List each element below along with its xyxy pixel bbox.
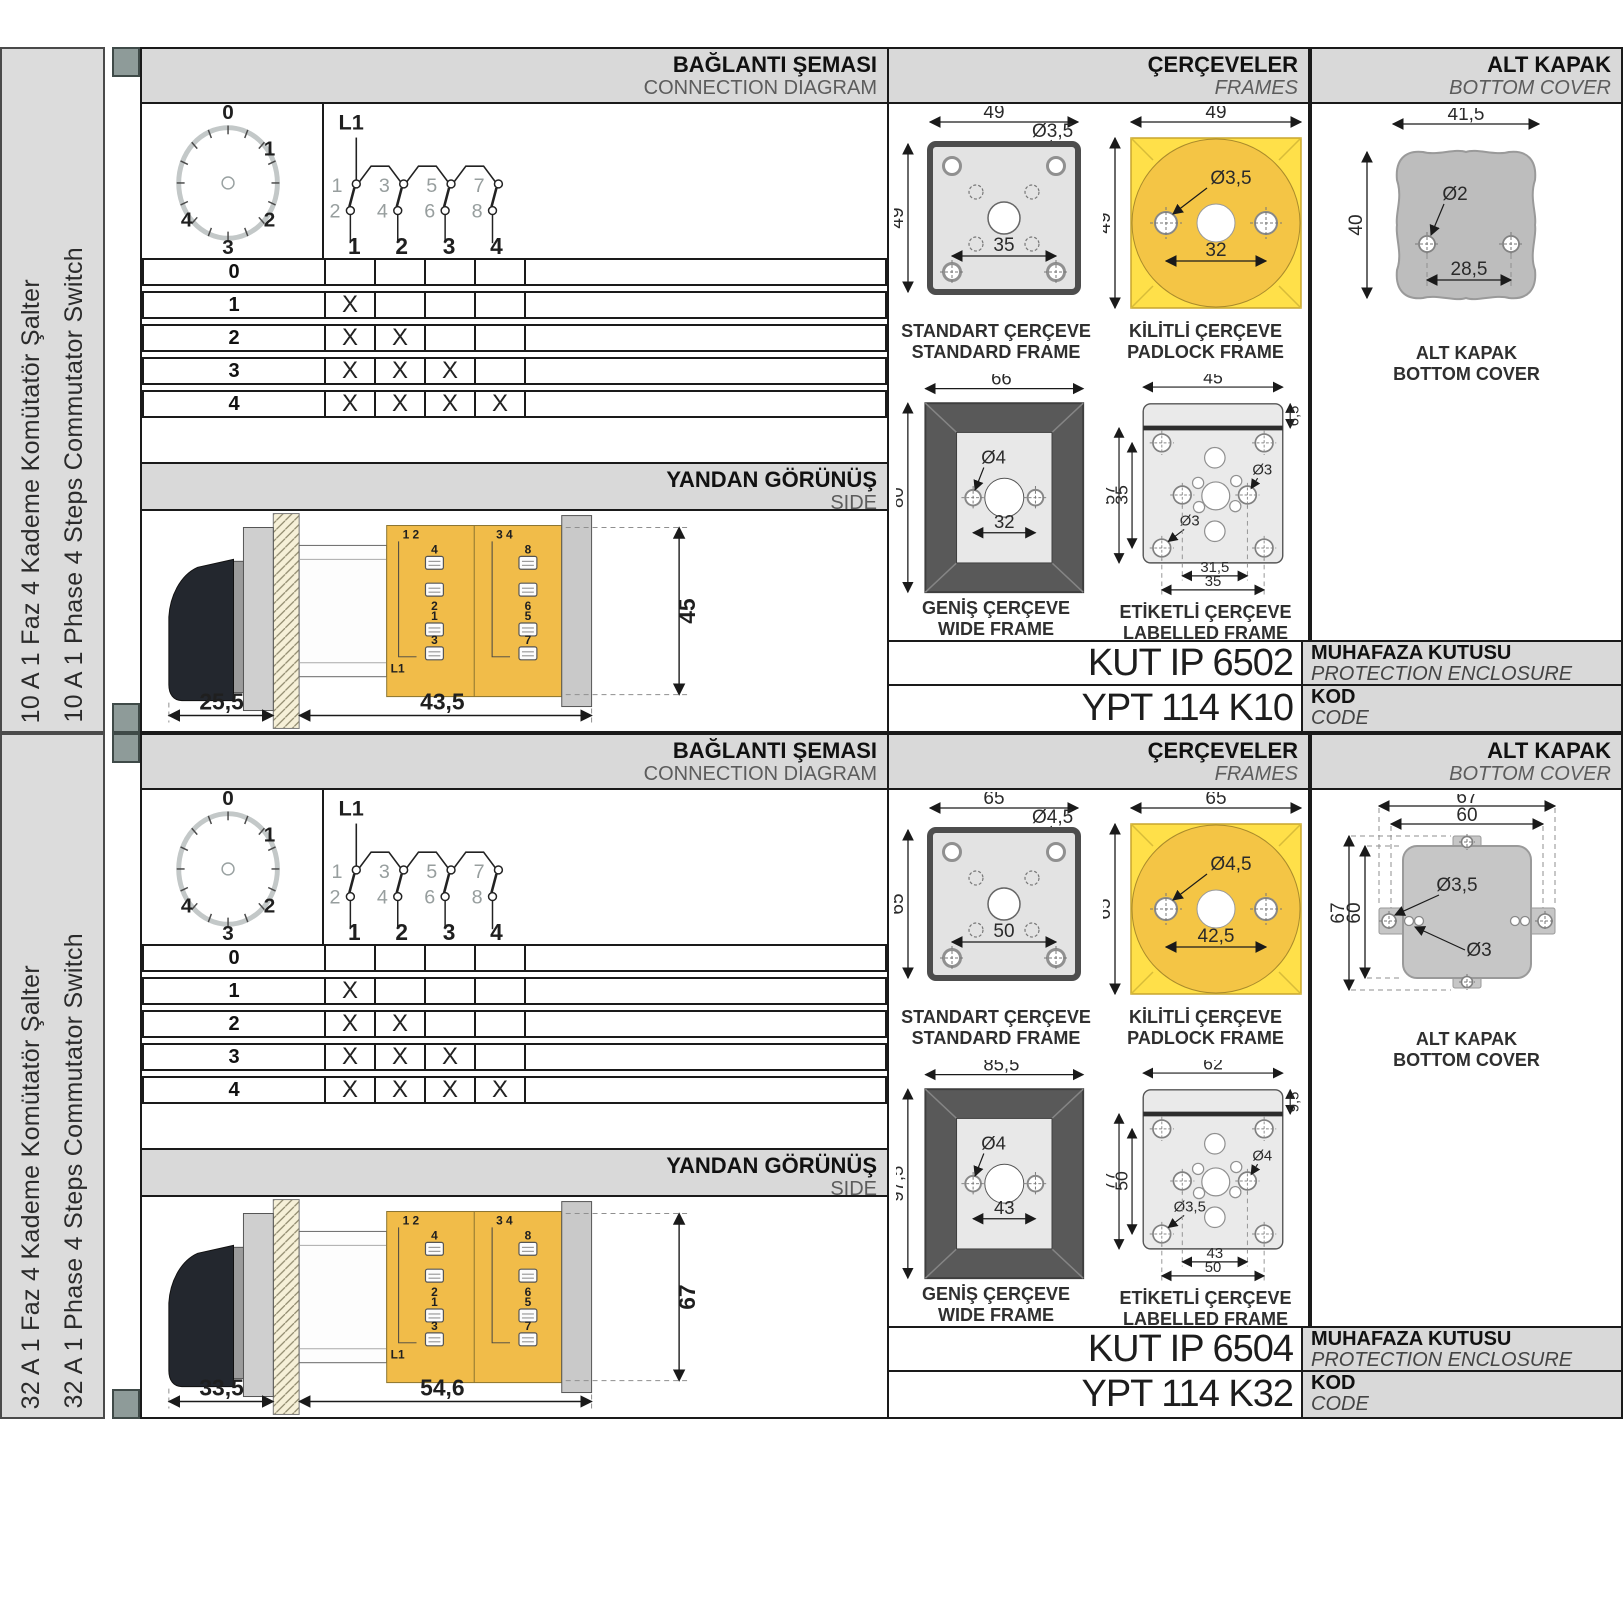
connection-title-en: CONNECTION DIAGRAM	[146, 763, 877, 785]
switch-position-dial: 0 1 2 3 4	[142, 790, 324, 944]
dim-hole-corner: Ø3,5	[1173, 1200, 1205, 1216]
pole-number: 4	[490, 919, 503, 942]
schematic-drawing: L1	[330, 110, 504, 256]
bottom-cover-panel: ALT KAPAK BOTTOM COVER 41,5 40	[1310, 47, 1623, 640]
bottom-cover-caption-tr: ALT KAPAK	[1393, 1029, 1540, 1050]
contact-mark: X	[424, 1078, 474, 1102]
pole-number: 1	[348, 233, 361, 256]
dim-pitch: 43	[994, 1197, 1015, 1218]
terminal-number: 1	[331, 861, 342, 883]
standard-frame-caption-en: STANDARD FRAME	[901, 342, 1091, 363]
product-row: 10 A 1 Faz 4 Kademe Komütatör Şalter 10 …	[0, 47, 1623, 733]
contact-mark: X	[374, 359, 424, 383]
labelled-frame-caption-tr: ETİKETLİ ÇERÇEVE	[1119, 1288, 1291, 1309]
dim-pitch: 35	[993, 235, 1014, 256]
contact-mark	[374, 946, 424, 970]
table-spacer	[524, 260, 885, 284]
product-code-label: KOD CODE	[1301, 1372, 1621, 1417]
terminal-number: 1	[331, 175, 342, 197]
dim-height-inner: 60	[1344, 902, 1365, 923]
bottom-cover-header: ALT KAPAK BOTTOM COVER	[1312, 49, 1621, 104]
table-row: 4 X X X X	[142, 1076, 887, 1104]
bottom-cover-title-en: BOTTOM COVER	[1316, 77, 1611, 99]
terminal-label: 5	[525, 1295, 532, 1309]
product-code-label-en: CODE	[1311, 708, 1613, 729]
bottom-cover-title-tr: ALT KAPAK	[1316, 53, 1611, 77]
dim-width: 45	[1203, 374, 1223, 387]
side-view-drawing: 1 2 3 4	[142, 511, 887, 733]
switch-side-view: 1 2 3 4	[169, 514, 700, 729]
dial-label-3: 3	[222, 236, 234, 256]
dim-band: 9,5	[1286, 1092, 1302, 1113]
side-view-header: YANDAN GÖRÜNÜŞ SIDE	[142, 1148, 887, 1197]
product-title-english: 10 A 1 Phase 4 Steps Commutator Switch	[60, 247, 89, 723]
contact-mark	[424, 260, 474, 284]
terminal-number: 6	[424, 887, 435, 909]
padlock-frame-caption-tr: KİLİTLİ ÇERÇEVE	[1127, 321, 1284, 342]
pole-number: 3	[443, 919, 456, 942]
terminal-number: 3	[379, 175, 390, 197]
table-spacer	[524, 359, 885, 383]
dim-hole: Ø4,5	[1032, 807, 1073, 828]
table-row: 0	[142, 944, 887, 972]
terminal-group-label: 1 2	[403, 1213, 420, 1227]
enclosure-label-en: PROTECTION ENCLOSURE	[1311, 1350, 1613, 1371]
connection-panel: BAĞLANTI ŞEMASI CONNECTION DIAGRAM	[140, 733, 889, 1419]
bottom-cover-panel: ALT KAPAK BOTTOM COVER 67 67	[1310, 733, 1623, 1326]
step-label: 2	[144, 326, 324, 350]
dim-height: 65	[894, 893, 908, 914]
product-sidebar: 32 A 1 Faz 4 Kademe Komütatör Şalter 32 …	[0, 733, 105, 1419]
dim-height: 49	[1103, 212, 1115, 233]
contact-mark: X	[424, 1045, 474, 1069]
terminal-label: 4	[431, 542, 438, 556]
connection-header: BAĞLANTI ŞEMASI CONNECTION DIAGRAM	[142, 49, 887, 104]
standard-frame-cell: 65 Ø4,5 65	[889, 790, 1103, 1058]
contact-mark	[474, 326, 524, 350]
catalog-page: 10 A 1 Faz 4 Kademe Komütatör Şalter 10 …	[0, 0, 1623, 1623]
table-row: 2 X X	[142, 1010, 887, 1038]
schematic-input-label: L1	[339, 796, 364, 821]
step-label: 4	[144, 392, 324, 416]
table-row: 3 X X X	[142, 357, 887, 385]
side-view-title-tr: YANDAN GÖRÜNÜŞ	[146, 1154, 877, 1178]
dim-hole: Ø3,5	[1436, 875, 1477, 896]
dim-hole-mid: Ø4	[1252, 1149, 1272, 1165]
wide-frame-caption-tr: GENİŞ ÇERÇEVE	[922, 598, 1070, 619]
padlock-frame-cell: 65 65	[1103, 790, 1308, 1058]
product-sidebar: 10 A 1 Faz 4 Kademe Komütatör Şalter 10 …	[0, 47, 105, 733]
terminal-number: 5	[426, 175, 437, 197]
side-input-label: L1	[391, 1348, 405, 1362]
terminal-label: 5	[525, 609, 532, 623]
standard-frame-drawing: 65 Ø4,5 65	[894, 792, 1099, 1007]
product-code-label-tr: KOD	[1311, 687, 1613, 708]
side-view-title-tr: YANDAN GÖRÜNÜŞ	[146, 468, 877, 492]
contact-mark: X	[424, 359, 474, 383]
standard-frame-caption-en: STANDARD FRAME	[901, 1028, 1091, 1049]
product-code-value: YPT 114 K10	[889, 686, 1301, 731]
contact-mark: X	[374, 392, 424, 416]
terminal-number: 3	[379, 861, 390, 883]
contact-mark	[474, 1012, 524, 1036]
product-title-turkish: 32 A 1 Faz 4 Kademe Komütatör Şalter	[17, 965, 46, 1409]
bottom-cover-drawing: 41,5 40 Ø2 28,5	[1327, 108, 1607, 343]
table-spacer	[524, 1012, 885, 1036]
terminal-group-label: 3 4	[496, 527, 513, 541]
contact-mark: X	[324, 293, 374, 317]
connection-panel: BAĞLANTI ŞEMASI CONNECTION DIAGRAM	[140, 47, 889, 733]
table-row: 2 X X	[142, 324, 887, 352]
terminal-label: 8	[525, 1228, 532, 1242]
bottom-cover-drawing: 67 60 67 60	[1327, 794, 1607, 1029]
dial-label-2: 2	[264, 208, 276, 231]
dim-hole-small: Ø3	[1466, 940, 1491, 961]
padlock-frame-cell: 49 49	[1103, 104, 1308, 372]
bottom-cover-header: ALT KAPAK BOTTOM COVER	[1312, 735, 1621, 790]
connection-title-tr: BAĞLANTI ŞEMASI	[146, 53, 877, 77]
terminal-label: 1	[431, 609, 438, 623]
step-label: 3	[144, 359, 324, 383]
step-label: 1	[144, 979, 324, 1003]
contact-mark: X	[324, 392, 374, 416]
dim-height: 40	[1346, 214, 1367, 235]
terminal-number: 8	[472, 887, 483, 909]
contact-mark	[474, 359, 524, 383]
dial-label-1: 1	[264, 137, 276, 160]
step-label: 1	[144, 293, 324, 317]
standard-frame-caption-tr: STANDART ÇERÇEVE	[901, 321, 1091, 342]
dim-width: 41,5	[1447, 108, 1484, 125]
dim-width: 65	[983, 792, 1004, 809]
dim-width: 62	[1203, 1060, 1223, 1073]
dial-label-0: 0	[222, 104, 234, 124]
dim-handle-depth: 33,5	[199, 1375, 244, 1401]
switch-position-dial: 0 1 2 3 4	[142, 104, 324, 258]
enclosure-code: KUT IP 6502	[889, 642, 1301, 684]
contact-mark	[474, 946, 524, 970]
table-spacer	[524, 392, 885, 416]
product-code-value: YPT 114 K32	[889, 1372, 1301, 1417]
contact-mark: X	[374, 1045, 424, 1069]
terminal-label: 3	[431, 1319, 438, 1333]
contact-mark	[424, 293, 474, 317]
terminal-label: 7	[525, 1319, 532, 1333]
dial-label-1: 1	[264, 823, 276, 846]
bottom-cover-title-en: BOTTOM COVER	[1316, 763, 1611, 785]
wide-frame-caption-tr: GENİŞ ÇERÇEVE	[922, 1284, 1070, 1305]
product-code-label-tr: KOD	[1311, 1373, 1613, 1394]
step-label: 3	[144, 1045, 324, 1069]
dim-pitch: 50	[993, 921, 1014, 942]
step-label: 0	[144, 260, 324, 284]
contact-mark	[374, 260, 424, 284]
contact-table: 0 1 X 2 X X	[142, 944, 887, 1109]
dim-pitch-outer: 50	[1204, 1260, 1221, 1276]
dial-label-3: 3	[222, 922, 234, 942]
schematic-drawing: L1	[330, 796, 504, 942]
step-label: 0	[144, 946, 324, 970]
contact-mark	[324, 260, 374, 284]
side-view-header: YANDAN GÖRÜNÜŞ SIDE	[142, 462, 887, 511]
dial-face: 0 1 2 3 4	[177, 790, 280, 942]
padlock-frame-caption-en: PADLOCK FRAME	[1127, 1028, 1284, 1049]
side-input-label: L1	[391, 662, 405, 676]
table-row: 0	[142, 258, 887, 286]
dial-label-2: 2	[264, 894, 276, 917]
dial-face: 0 1 2 3 4	[177, 104, 280, 256]
contact-schematic: L1	[324, 790, 887, 944]
contact-mark	[424, 326, 474, 350]
dim-hole: Ø2	[1442, 184, 1467, 205]
contact-schematic: L1	[324, 104, 887, 258]
table-row: 4 X X X X	[142, 390, 887, 418]
wide-frame-caption-en: WIDE FRAME	[922, 1305, 1070, 1326]
product-code-label: KOD CODE	[1301, 686, 1621, 731]
standard-frame-caption-tr: STANDART ÇERÇEVE	[901, 1007, 1091, 1028]
contact-mark: X	[374, 1012, 424, 1036]
pole-number: 2	[395, 919, 408, 942]
dial-label-0: 0	[222, 790, 234, 810]
enclosure-code: KUT IP 6504	[889, 1328, 1301, 1370]
dim-hole: Ø4	[981, 1133, 1006, 1154]
table-spacer	[524, 946, 885, 970]
wide-frame-drawing: 66 80	[896, 374, 1096, 598]
terminal-number: 4	[377, 887, 388, 909]
contact-mark	[474, 979, 524, 1003]
padlock-frame-drawing: 49 49	[1103, 106, 1308, 321]
schematic-input-label: L1	[339, 110, 364, 135]
bottom-cover-caption-tr: ALT KAPAK	[1393, 343, 1540, 364]
product-title-english: 32 A 1 Phase 4 Steps Commutator Switch	[60, 933, 89, 1409]
bottom-cover-caption-en: BOTTOM COVER	[1393, 364, 1540, 385]
labelled-frame-drawing: 45 6,5 57 35	[1106, 374, 1306, 602]
bottom-cover-caption-en: BOTTOM COVER	[1393, 1050, 1540, 1071]
enclosure-row: KUT IP 6502 MUHAFAZA KUTUSU PROTECTION E…	[889, 640, 1623, 686]
pole-number: 3	[443, 233, 456, 256]
labelled-frame-cell: 62 9,5 77 50	[1103, 1058, 1308, 1329]
dim-hole: Ø3,5	[1032, 121, 1073, 142]
bottom-cover-cell: 67 67 Ø3,5	[1312, 790, 1621, 1070]
step-label: 2	[144, 1012, 324, 1036]
contact-mark: X	[324, 1078, 374, 1102]
wide-frame-drawing: 85,5 97,5	[896, 1060, 1096, 1284]
dim-height: 80	[896, 487, 907, 508]
frames-header: ÇERÇEVELER FRAMES	[889, 49, 1308, 104]
enclosure-label-en: PROTECTION ENCLOSURE	[1311, 664, 1613, 685]
frames-title-tr: ÇERÇEVELER	[893, 739, 1298, 763]
switch-handle	[169, 559, 234, 700]
product-code-row: YPT 114 K10 KOD CODE	[889, 686, 1623, 733]
table-row: 1 X	[142, 291, 887, 319]
standard-frame-drawing: 49 Ø3,5 49	[894, 106, 1099, 321]
dim-pitch-outer: 35	[1204, 574, 1221, 590]
contact-mark: X	[324, 359, 374, 383]
terminal-group-label: 3 4	[496, 1213, 513, 1227]
table-spacer	[524, 326, 885, 350]
contact-mark: X	[374, 326, 424, 350]
terminal-number: 6	[424, 201, 435, 223]
frames-title-en: FRAMES	[893, 763, 1298, 785]
product-title-turkish: 10 A 1 Faz 4 Kademe Komütatör Şalter	[17, 279, 46, 723]
binder-mark	[112, 47, 140, 77]
wide-frame-cell: 85,5 97,5	[889, 1058, 1103, 1329]
dial-label-4: 4	[181, 894, 193, 917]
table-spacer	[524, 293, 885, 317]
wide-frame-caption-en: WIDE FRAME	[922, 619, 1070, 640]
terminal-label: 1	[431, 1295, 438, 1309]
table-row: 3 X X X	[142, 1043, 887, 1071]
frames-panel: ÇERÇEVELER FRAMES 49 Ø3,5 49	[889, 47, 1310, 640]
contact-mark: X	[424, 392, 474, 416]
dim-body-depth: 43,5	[420, 689, 465, 715]
dim-width: 49	[983, 106, 1004, 123]
wide-frame-cell: 66 80	[889, 372, 1103, 643]
table-spacer	[524, 1078, 885, 1102]
pole-number: 1	[348, 919, 361, 942]
terminal-group-label: 1 2	[403, 527, 420, 541]
enclosure-label: MUHAFAZA KUTUSU PROTECTION ENCLOSURE	[1301, 642, 1621, 684]
contact-mark	[474, 293, 524, 317]
bottom-cover-cell: 41,5 40 Ø2 28,5	[1312, 104, 1621, 384]
frames-title-en: FRAMES	[893, 77, 1298, 99]
dim-inner-height: 50	[1111, 1171, 1131, 1191]
terminal-label: 4	[431, 1228, 438, 1242]
dim-body-depth: 54,6	[420, 1375, 465, 1401]
dim-height: 97,5	[896, 1166, 907, 1202]
dim-width: 66	[991, 374, 1012, 389]
contact-mark: X	[324, 979, 374, 1003]
dim-height: 45	[674, 598, 700, 624]
dim-width: 65	[1205, 792, 1226, 809]
step-label: 4	[144, 1078, 324, 1102]
terminal-number: 7	[474, 861, 485, 883]
terminal-label: 3	[431, 633, 438, 647]
contact-mark: X	[474, 392, 524, 416]
dim-height: 65	[1103, 898, 1115, 919]
labelled-frame-caption-tr: ETİKETLİ ÇERÇEVE	[1119, 602, 1291, 623]
binder-mark	[112, 733, 140, 763]
terminal-label: 7	[525, 633, 532, 647]
product-code-label-en: CODE	[1311, 1394, 1613, 1415]
binder-mark	[112, 703, 140, 733]
enclosure-label-tr: MUHAFAZA KUTUSU	[1311, 1329, 1613, 1350]
terminal-number: 2	[330, 201, 341, 223]
connection-title-en: CONNECTION DIAGRAM	[146, 77, 877, 99]
connection-header: BAĞLANTI ŞEMASI CONNECTION DIAGRAM	[142, 735, 887, 790]
dim-hole-mid: Ø3	[1252, 463, 1272, 479]
dim-width-inner: 60	[1456, 805, 1477, 826]
contact-mark: X	[324, 326, 374, 350]
bottom-cover-title-tr: ALT KAPAK	[1316, 739, 1611, 763]
dim-hole: Ø3,5	[1210, 168, 1251, 189]
contact-mark	[374, 979, 424, 1003]
table-spacer	[524, 979, 885, 1003]
contact-mark	[374, 293, 424, 317]
table-row: 1 X	[142, 977, 887, 1005]
terminal-number: 8	[472, 201, 483, 223]
contact-mark	[424, 946, 474, 970]
padlock-frame-caption-tr: KİLİTLİ ÇERÇEVE	[1127, 1007, 1284, 1028]
contact-mark: X	[474, 1078, 524, 1102]
terminal-number: 4	[377, 201, 388, 223]
contact-mark	[474, 1045, 524, 1069]
dim-band: 6,5	[1286, 406, 1302, 427]
dim-handle-depth: 25,5	[199, 689, 244, 715]
dim-width: 49	[1205, 106, 1226, 123]
contact-mark: X	[324, 1045, 374, 1069]
connection-title-tr: BAĞLANTI ŞEMASI	[146, 739, 877, 763]
frames-title-tr: ÇERÇEVELER	[893, 53, 1298, 77]
pole-number: 2	[395, 233, 408, 256]
dim-width: 85,5	[983, 1060, 1019, 1075]
dim-pitch: 42,5	[1198, 926, 1235, 947]
enclosure-row: KUT IP 6504 MUHAFAZA KUTUSU PROTECTION E…	[889, 1326, 1623, 1372]
dial-label-4: 4	[181, 208, 193, 231]
dim-hole-corner: Ø3	[1179, 514, 1199, 530]
dim-pitch: 28,5	[1450, 259, 1487, 280]
dim-height: 67	[674, 1284, 700, 1309]
contact-mark	[324, 946, 374, 970]
enclosure-label: MUHAFAZA KUTUSU PROTECTION ENCLOSURE	[1301, 1328, 1621, 1370]
contact-mark: X	[374, 1078, 424, 1102]
pole-number: 4	[490, 233, 503, 256]
padlock-frame-caption-en: PADLOCK FRAME	[1127, 342, 1284, 363]
switch-side-view: 1 2 3 4	[169, 1200, 700, 1415]
terminal-number: 2	[330, 887, 341, 909]
contact-mark	[424, 979, 474, 1003]
binder-mark	[112, 1389, 140, 1419]
standard-frame-cell: 49 Ø3,5 49	[889, 104, 1103, 372]
terminal-label: 8	[525, 542, 532, 556]
product-row: 32 A 1 Faz 4 Kademe Komütatör Şalter 32 …	[0, 733, 1623, 1419]
labelled-frame-drawing: 62 9,5 77 50	[1106, 1060, 1306, 1288]
contact-mark: X	[324, 1012, 374, 1036]
frames-panel: ÇERÇEVELER FRAMES 65 Ø4,5 65	[889, 733, 1310, 1326]
contact-mark	[424, 1012, 474, 1036]
dim-height: 49	[894, 207, 908, 228]
contact-table: 0 1 X 2 X X	[142, 258, 887, 423]
contact-mark	[474, 260, 524, 284]
terminal-number: 5	[426, 861, 437, 883]
switch-handle	[169, 1245, 234, 1386]
dim-pitch: 32	[1205, 240, 1226, 261]
enclosure-label-tr: MUHAFAZA KUTUSU	[1311, 643, 1613, 664]
terminal-number: 7	[474, 175, 485, 197]
table-spacer	[524, 1045, 885, 1069]
side-view-drawing: 1 2 3 4	[142, 1197, 887, 1419]
dim-hole: Ø4,5	[1210, 854, 1251, 875]
frames-header: ÇERÇEVELER FRAMES	[889, 735, 1308, 790]
dim-inner-height: 35	[1111, 485, 1131, 505]
dim-pitch: 32	[994, 511, 1015, 532]
product-code-row: YPT 114 K32 KOD CODE	[889, 1372, 1623, 1419]
padlock-frame-drawing: 65 65	[1103, 792, 1308, 1007]
labelled-frame-cell: 45 6,5 57 35	[1103, 372, 1308, 643]
dim-hole: Ø4	[981, 447, 1006, 468]
